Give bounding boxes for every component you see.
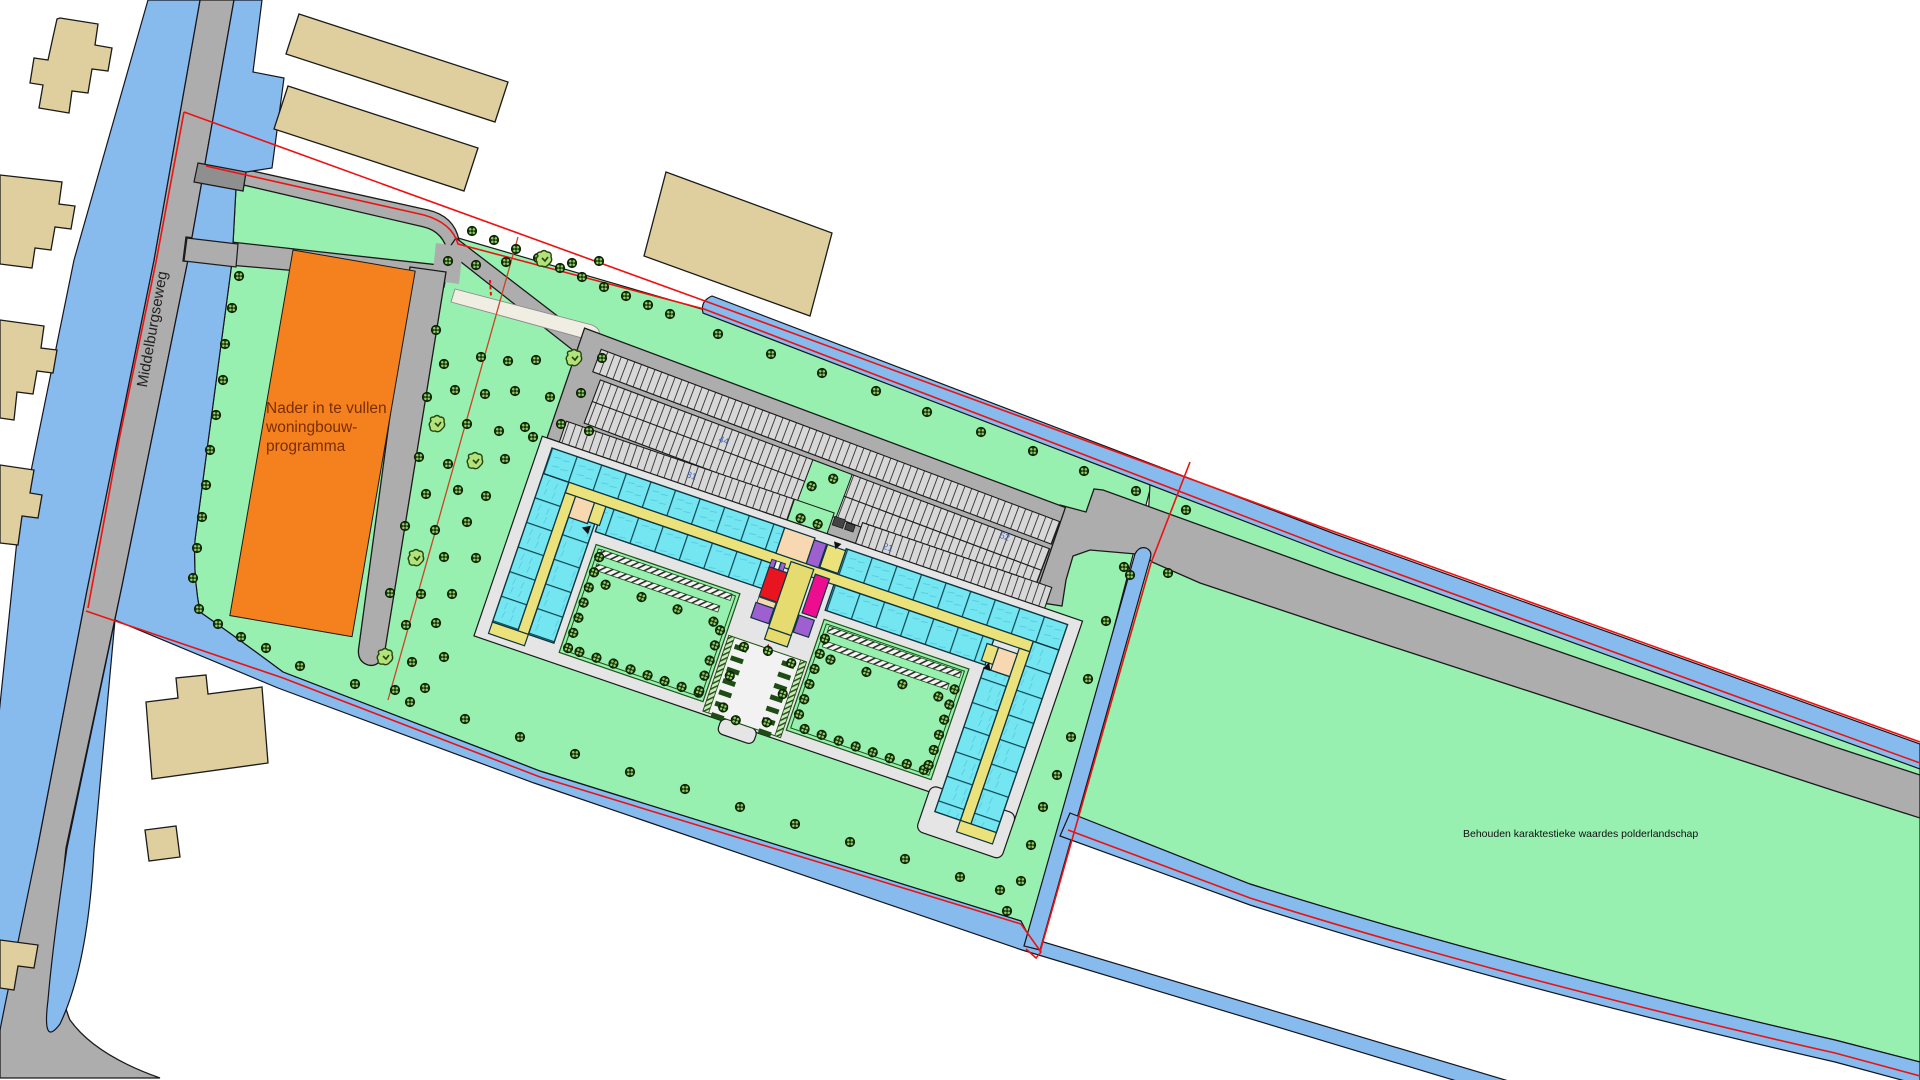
- svg-text:Behouden karaktestieke waardes: Behouden karaktestieke waardes polderlan…: [1463, 828, 1698, 840]
- svg-text:programma: programma: [266, 438, 346, 455]
- svg-text:Nader in te vullen: Nader in te vullen: [266, 400, 387, 417]
- svg-text:woningbouw-: woningbouw-: [265, 419, 357, 436]
